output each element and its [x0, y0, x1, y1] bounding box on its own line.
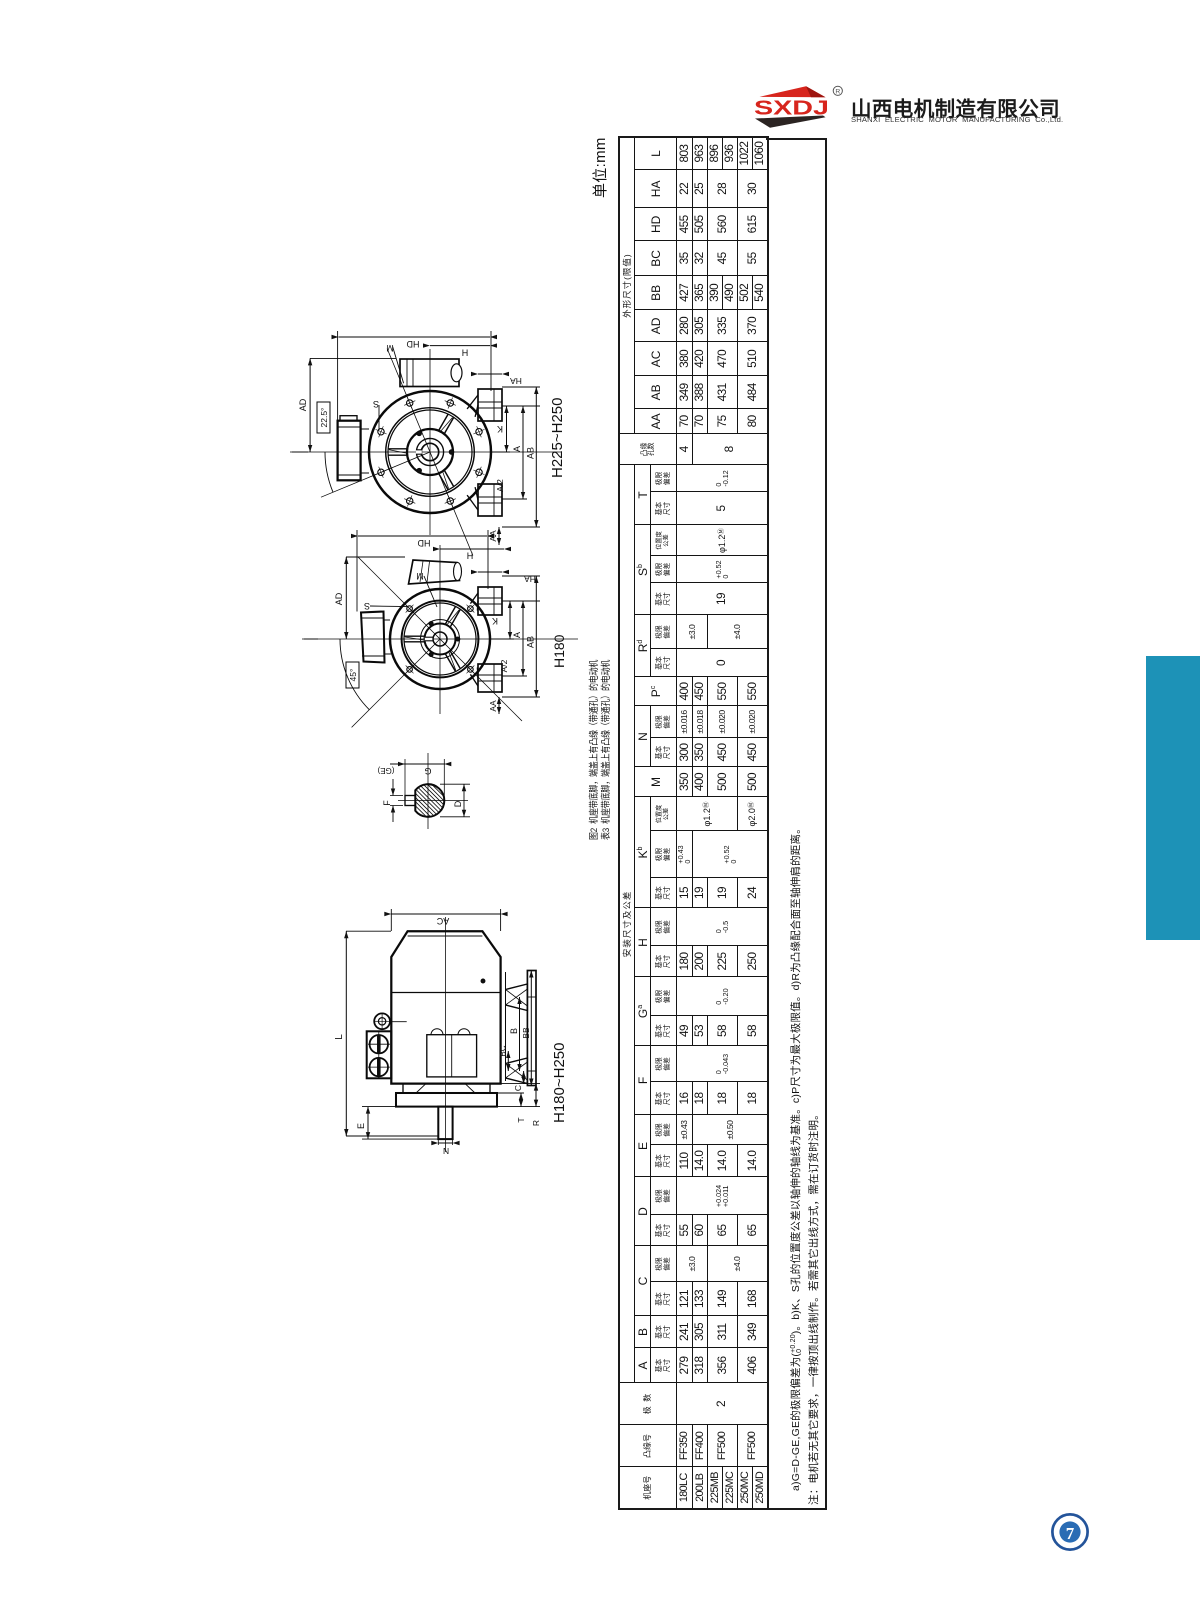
svg-text:HD: HD — [417, 538, 430, 548]
svg-text:AB: AB — [526, 636, 536, 648]
svg-text:HA: HA — [524, 574, 536, 584]
svg-text:AA: AA — [488, 700, 498, 712]
svg-text:H180: H180 — [551, 634, 567, 668]
svg-text:M: M — [416, 571, 424, 581]
svg-text:A/2: A/2 — [499, 659, 509, 672]
svg-text:(GE): (GE) — [377, 766, 394, 775]
svg-text:BC: BC — [499, 1045, 508, 1056]
svg-text:T: T — [516, 1117, 526, 1122]
svg-text:S: S — [373, 399, 379, 409]
svg-text:A/2: A/2 — [495, 479, 505, 492]
svg-text:C: C — [513, 1085, 523, 1091]
svg-text:H225~H250: H225~H250 — [549, 398, 566, 478]
svg-text:H: H — [462, 348, 469, 358]
svg-text:K: K — [492, 616, 498, 626]
svg-text:F: F — [382, 800, 392, 806]
svg-text:N: N — [443, 1146, 449, 1156]
svg-text:E: E — [356, 1123, 366, 1129]
svg-text:H: H — [467, 551, 474, 561]
svg-text:G: G — [424, 766, 431, 776]
svg-text:A: A — [512, 632, 522, 638]
svg-text:AD: AD — [334, 592, 344, 605]
svg-text:D: D — [453, 800, 463, 807]
svg-text:22.5°: 22.5° — [319, 408, 329, 428]
svg-text:H180~H250: H180~H250 — [551, 1043, 568, 1123]
svg-text:R: R — [531, 1120, 541, 1126]
svg-text:A: A — [512, 446, 522, 452]
svg-text:45°: 45° — [348, 669, 358, 682]
svg-text:S: S — [364, 601, 370, 611]
svg-text:HD: HD — [406, 339, 419, 349]
svg-text:AB: AB — [526, 447, 536, 459]
svg-text:HA: HA — [510, 376, 522, 386]
svg-text:BB: BB — [521, 1027, 531, 1039]
svg-text:L: L — [334, 1034, 345, 1040]
svg-text:K: K — [497, 424, 503, 434]
svg-text:AD: AD — [298, 398, 308, 411]
svg-text:B: B — [509, 1028, 519, 1034]
svg-text:AC: AC — [436, 916, 449, 926]
